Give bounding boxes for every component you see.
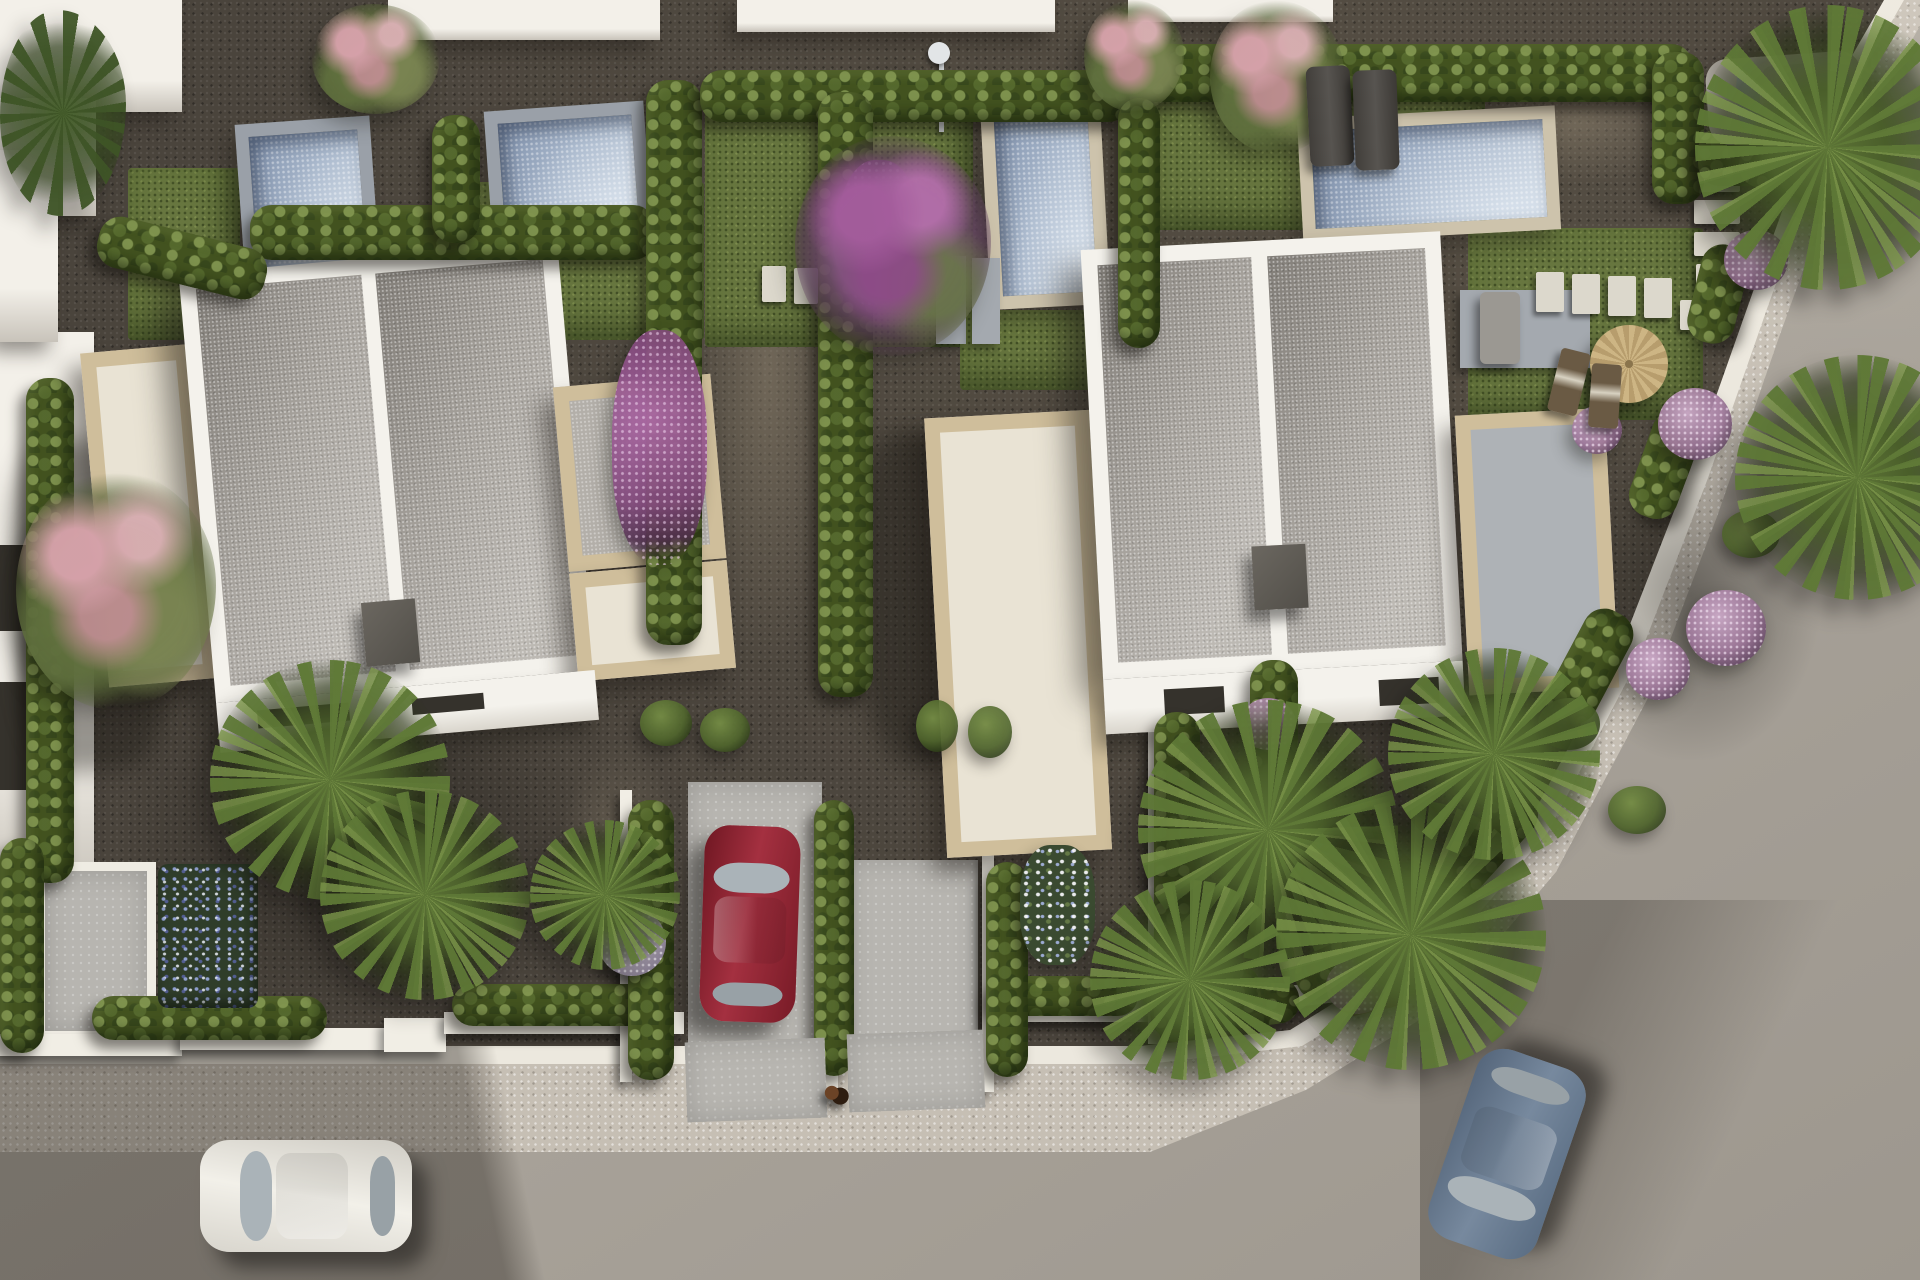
- driveway-ramp: [685, 1038, 828, 1123]
- aerial-villa-render: [0, 0, 1920, 1280]
- rear-window: [370, 1156, 395, 1237]
- windshield: [240, 1151, 272, 1241]
- car-blue: [1421, 1041, 1594, 1267]
- street-layer: [0, 0, 1920, 1280]
- car-roof: [276, 1153, 348, 1238]
- driveway-ramp: [847, 1030, 986, 1113]
- car-white: [200, 1140, 412, 1252]
- dog: [822, 1084, 850, 1106]
- palm-tree-overhang: [1695, 5, 1920, 290]
- rear-window: [1488, 1061, 1573, 1110]
- palm-tree-overhang: [1735, 355, 1920, 600]
